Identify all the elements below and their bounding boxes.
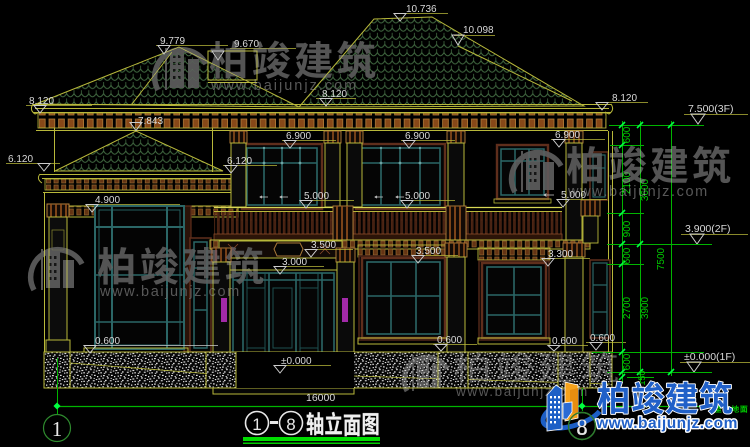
svg-text:2700: 2700 xyxy=(622,296,633,319)
svg-text:7.843: 7.843 xyxy=(138,116,163,127)
svg-text:7.500(3F): 7.500(3F) xyxy=(688,103,734,115)
svg-text:7500: 7500 xyxy=(656,247,667,270)
svg-text:www.baijunjz.com: www.baijunjz.com xyxy=(567,184,709,200)
svg-text:3900: 3900 xyxy=(640,296,651,319)
svg-text:1: 1 xyxy=(52,417,63,441)
svg-text:1: 1 xyxy=(252,415,261,434)
svg-text:3.900(2F): 3.900(2F) xyxy=(685,223,731,235)
svg-text:600: 600 xyxy=(622,247,633,264)
svg-text:600: 600 xyxy=(622,126,633,143)
svg-text:www.baijunjz.com: www.baijunjz.com xyxy=(210,78,358,94)
svg-text:www.baijunjz.com: www.baijunjz.com xyxy=(595,415,738,432)
svg-text:10.098: 10.098 xyxy=(463,25,494,36)
svg-text:600: 600 xyxy=(622,353,633,370)
svg-text:8: 8 xyxy=(286,415,295,434)
svg-text:www.baijunjz.com: www.baijunjz.com xyxy=(99,284,241,300)
svg-text:900: 900 xyxy=(622,220,633,237)
svg-text:16000: 16000 xyxy=(306,392,335,404)
svg-text:8: 8 xyxy=(576,415,588,440)
